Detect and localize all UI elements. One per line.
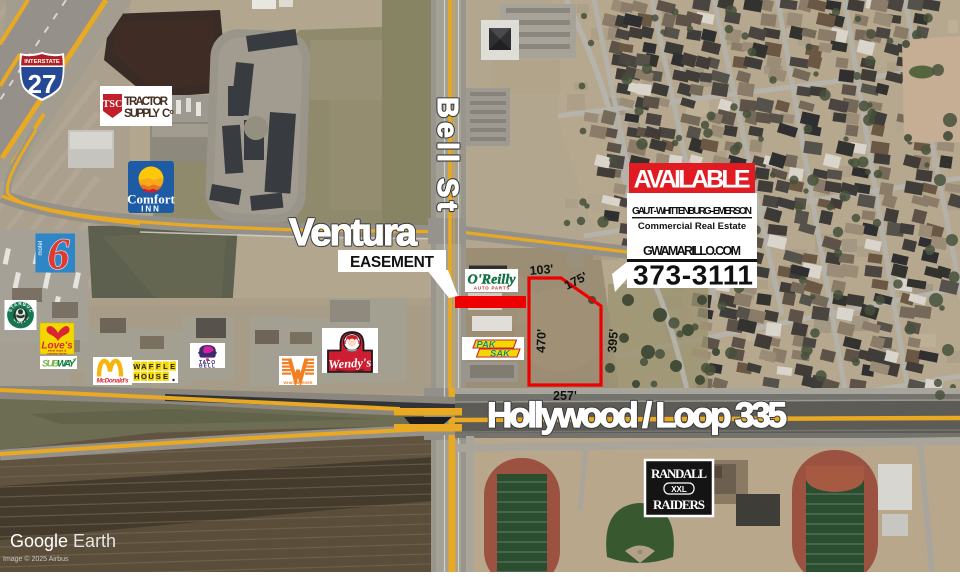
svg-text:GAUT - WHITTENBURG - EMERSON: GAUT - WHITTENBURG - EMERSON xyxy=(632,206,752,217)
svg-text:F: F xyxy=(156,362,161,371)
svg-text:motel: motel xyxy=(38,241,44,256)
svg-text:BELL: BELL xyxy=(199,364,216,370)
svg-text:470': 470' xyxy=(534,329,549,353)
svg-text:AUTO PARTS: AUTO PARTS xyxy=(474,286,510,291)
svg-text:6: 6 xyxy=(48,230,70,279)
svg-text:Image © 2025 Airbus: Image © 2025 Airbus xyxy=(3,555,69,563)
svg-text:SAK: SAK xyxy=(490,349,511,360)
svg-text:W: W xyxy=(133,362,141,371)
svg-text:Wendy's: Wendy's xyxy=(328,355,372,371)
svg-text:INN: INN xyxy=(141,205,161,214)
svg-text:o: o xyxy=(170,109,174,116)
svg-text:McDonald's: McDonald's xyxy=(97,378,129,385)
svg-text:AVAILABLE: AVAILABLE xyxy=(634,166,751,194)
svg-text:RANDALL: RANDALL xyxy=(651,466,707,481)
svg-text:257': 257' xyxy=(553,389,577,403)
svg-text:RAIDERS: RAIDERS xyxy=(653,497,705,512)
svg-text:SUPPLY: SUPPLY xyxy=(124,108,160,120)
svg-text:Ventura: Ventura xyxy=(289,212,418,254)
svg-text:SUBWAY: SUBWAY xyxy=(42,359,77,370)
svg-text:E: E xyxy=(163,372,168,381)
svg-text:H: H xyxy=(134,372,139,381)
svg-text:373-3111: 373-3111 xyxy=(633,260,753,291)
svg-text:F: F xyxy=(149,362,154,371)
svg-text:27: 27 xyxy=(28,69,57,99)
svg-text:U: U xyxy=(148,372,154,381)
svg-text:EASEMENT: EASEMENT xyxy=(350,254,435,271)
svg-text:395': 395' xyxy=(605,328,621,353)
svg-text:Hollywood / Loop 335: Hollywood / Loop 335 xyxy=(487,396,787,435)
svg-text:103': 103' xyxy=(529,262,554,278)
svg-text:GWAMARILLO.COM: GWAMARILLO.COM xyxy=(643,244,741,258)
svg-text:TRACTOR: TRACTOR xyxy=(124,96,169,108)
svg-text:A: A xyxy=(141,362,147,371)
svg-text:Bell St: Bell St xyxy=(431,97,463,211)
svg-text:S: S xyxy=(156,372,161,381)
svg-text:O: O xyxy=(141,372,147,381)
svg-text:WHATABURGER: WHATABURGER xyxy=(284,381,313,385)
svg-text:L: L xyxy=(163,362,168,371)
svg-text:TSC: TSC xyxy=(103,99,122,110)
svg-text:INTERSTATE: INTERSTATE xyxy=(24,59,60,65)
svg-text:Google Earth: Google Earth xyxy=(10,531,116,551)
svg-text:Commercial Real Estate: Commercial Real Estate xyxy=(638,221,746,232)
svg-text:E: E xyxy=(170,362,175,371)
svg-text:country stores: country stores xyxy=(47,351,67,355)
svg-text:XXL: XXL xyxy=(671,485,687,494)
